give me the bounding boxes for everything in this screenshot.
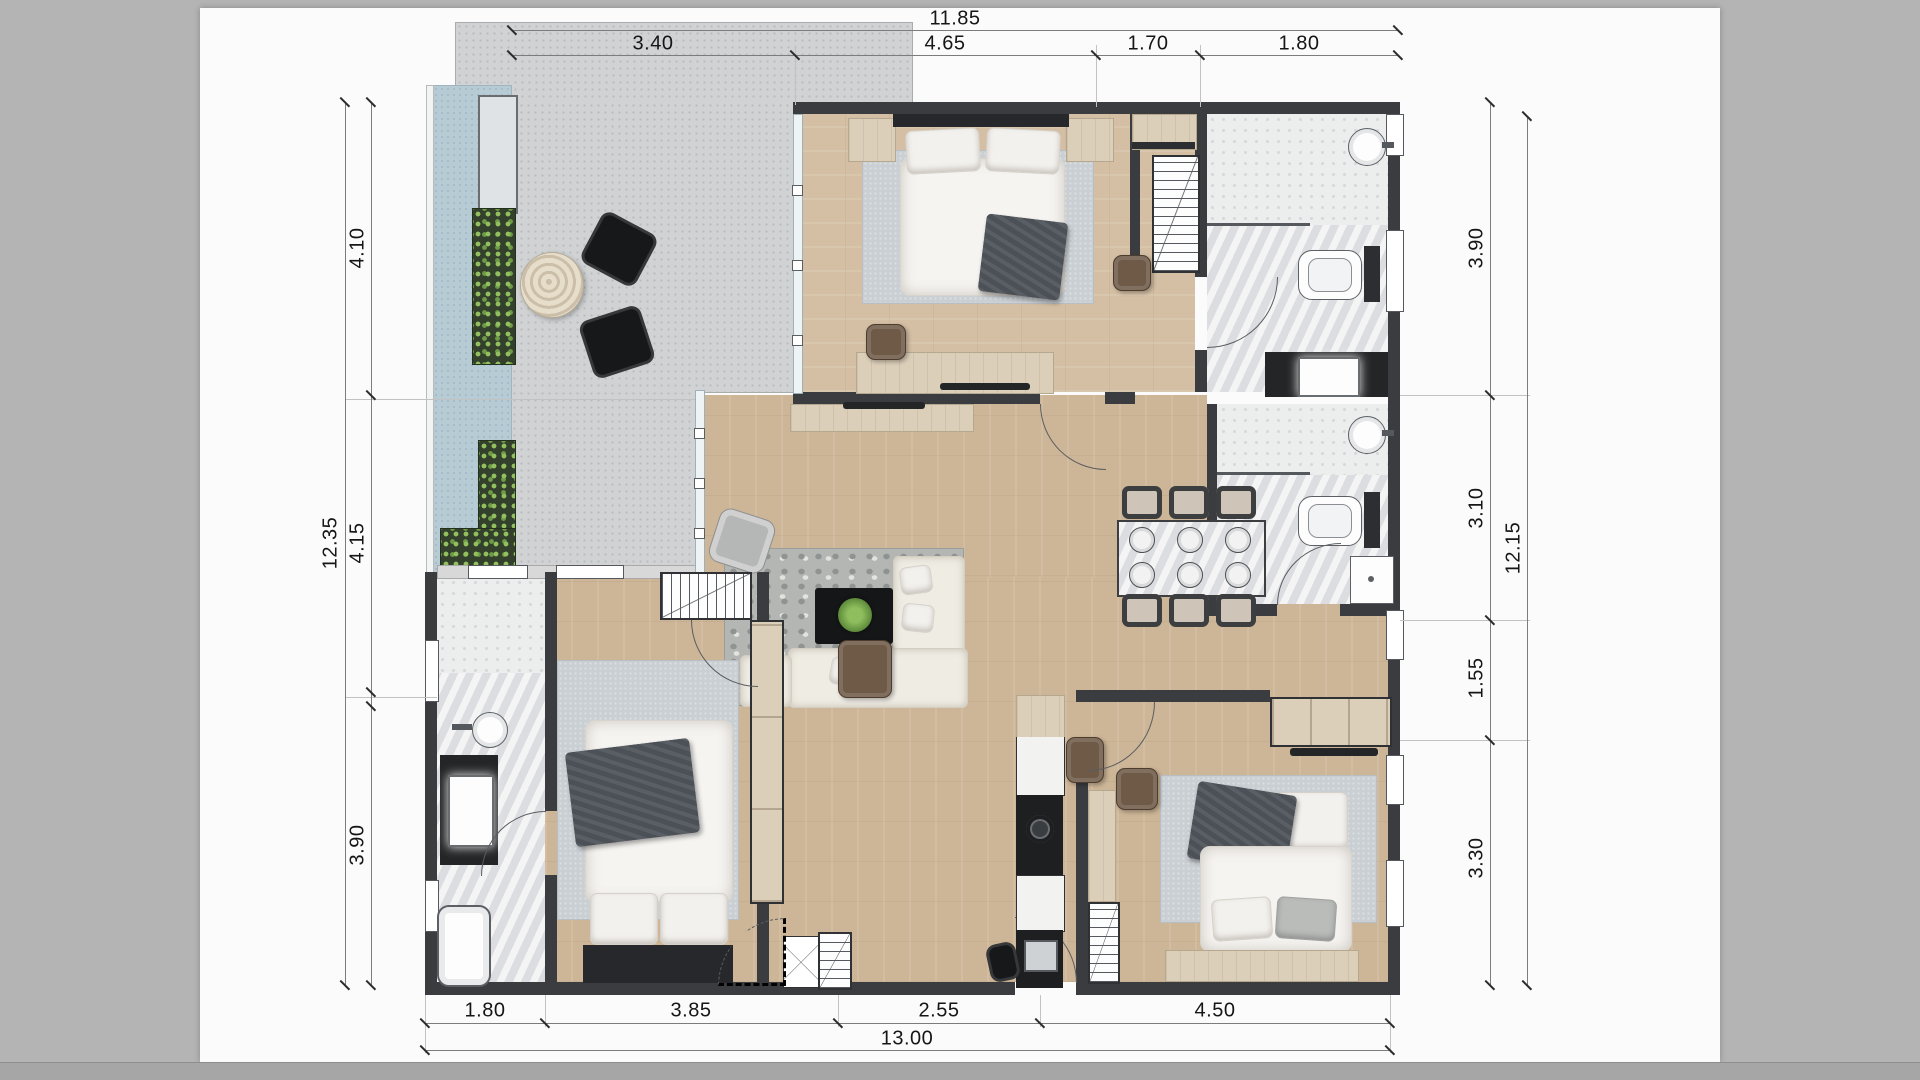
- nightstand-left: [848, 118, 896, 162]
- dim-line-right-segments: [1490, 102, 1491, 985]
- bedroom3-chair: [1116, 768, 1158, 810]
- dim-label-left-overall: 12.35: [320, 517, 343, 570]
- partition-bathroom-top: [1207, 223, 1310, 226]
- bathroom1-faucet: [452, 724, 472, 730]
- glass-wall-master-west: [793, 114, 803, 394]
- dim-label-top-overall: 11.85: [929, 8, 980, 31]
- dining-chair: [1169, 486, 1209, 519]
- bedroom3-wardrobe: [1270, 697, 1392, 747]
- window-north-bottom-1: [468, 565, 528, 579]
- kitchen-counter-marble-1: [1016, 737, 1065, 796]
- kitchen-upper-cabinet: [1016, 695, 1065, 739]
- entry-cabinet: [818, 932, 852, 990]
- bed2-pillow-1: [590, 893, 658, 945]
- kitchen-sink: [1024, 940, 1058, 972]
- wall-bedroom3-north: [1076, 690, 1270, 702]
- corridor-chair: [838, 640, 892, 698]
- window-east-4: [1386, 755, 1404, 805]
- vanity-sink: [1298, 357, 1360, 397]
- glass-mullion: [792, 260, 803, 271]
- dim-label-bottom-seg1: 1.80: [465, 1000, 506, 1023]
- dim-label-bottom-seg3: 2.55: [919, 1000, 960, 1023]
- extension-line: [345, 399, 695, 400]
- coffee-table-plant: [838, 598, 872, 632]
- bedroom3-tv: [1290, 748, 1378, 756]
- dim-label-left-seg3: 3.90: [347, 825, 370, 866]
- walkin-shelf-edge: [1132, 142, 1195, 149]
- terrace-lower: [510, 390, 698, 573]
- glass-mullion: [792, 335, 803, 346]
- dim-label-right-seg1: 3.90: [1466, 228, 1489, 269]
- dim-label-bottom-seg4: 4.50: [1195, 1000, 1236, 1023]
- extension-line: [345, 697, 437, 698]
- dining-plate: [1177, 562, 1203, 588]
- extension-line: [1400, 395, 1530, 396]
- dim-label-bottom-overall: 13.00: [881, 1028, 934, 1051]
- dim-label-right-seg4: 3.30: [1466, 838, 1489, 879]
- dim-label-right-overall: 12.15: [1503, 522, 1526, 575]
- window-east-5: [1386, 860, 1404, 927]
- walkin-wardrobe-cabinet: [1152, 155, 1200, 273]
- master-desk-chair: [866, 324, 906, 360]
- extension-line: [1400, 620, 1530, 621]
- wall-master-south-b: [1105, 392, 1135, 404]
- kitchen-pot: [1026, 815, 1054, 843]
- dim-label-top-seg3: 1.70: [1128, 33, 1169, 56]
- dining-chair: [1122, 486, 1162, 519]
- pool-edge: [426, 85, 434, 574]
- bed3-small-pillow-2: [1275, 896, 1338, 942]
- planter-plants-upper: [472, 208, 516, 365]
- dim-label-bottom-seg2: 3.85: [671, 1000, 712, 1023]
- glass-mullion: [792, 185, 803, 196]
- floor-plan-screenshot: 11.85 3.40 4.65 1.70 1.80 12.35 4.10 4.1…: [0, 0, 1920, 1080]
- bed2-pillow-2: [660, 893, 728, 945]
- wall-bedroom3-west: [1076, 772, 1088, 985]
- bathroom-top-faucet: [1382, 142, 1394, 148]
- window-east-3: [1386, 610, 1404, 660]
- bedroom3-closet-cabinet: [1088, 902, 1120, 984]
- dim-line-bottom-segments: [425, 1023, 1390, 1024]
- dim-label-right-seg3: 1.55: [1466, 658, 1489, 699]
- bed3-small-pillow-1: [1211, 896, 1274, 942]
- dining-plate: [1225, 527, 1251, 553]
- dining-chair: [1216, 594, 1256, 627]
- dining-chair: [1216, 486, 1256, 519]
- bathroom1-basin: [472, 712, 508, 748]
- glass-mullion: [694, 428, 705, 439]
- sheet-bottom-edge: [0, 1062, 1920, 1080]
- master-bed-headboard: [893, 114, 1069, 127]
- bathroom-top-toilet: [1298, 246, 1388, 302]
- floor-bathroom-bottom-left-mosaic: [437, 577, 545, 673]
- wall-bathroom-top-west-b: [1195, 350, 1207, 392]
- master-bed-pillow-1: [905, 127, 981, 175]
- bedroom3-dresser: [1088, 790, 1116, 902]
- dining-chair: [1169, 594, 1209, 627]
- kitchen-counter-marble-2: [1016, 875, 1065, 932]
- shower-drain: [1368, 576, 1374, 582]
- dining-plate: [1225, 562, 1251, 588]
- wall-bathroom1-east-a: [545, 572, 557, 811]
- bathroom-top-basin: [1348, 128, 1386, 166]
- partition-bathroom-mid: [1217, 472, 1310, 475]
- bed2-throw-blanket: [565, 738, 701, 848]
- bathtub: [437, 905, 491, 987]
- dim-line-right-overall: [1527, 116, 1528, 985]
- nightstand-right: [1066, 118, 1114, 162]
- planter-box-empty: [478, 95, 518, 214]
- window-west-bath1: [425, 640, 439, 702]
- wall-south-right: [1076, 982, 1400, 995]
- master-tv: [940, 383, 1030, 390]
- entry-floor-mat: [783, 936, 819, 988]
- bathroom1-vanity-sink: [448, 775, 494, 847]
- extension-line: [1400, 740, 1530, 741]
- wall-bathroom1-east-b: [545, 875, 557, 995]
- window-east-2: [1386, 230, 1404, 312]
- master-bed-pillow-2: [985, 127, 1061, 175]
- dim-label-left-seg2: 4.15: [347, 523, 370, 564]
- dining-chair: [1122, 594, 1162, 627]
- living-sideboard-cabinet: [660, 572, 752, 620]
- living-tv: [843, 402, 925, 409]
- wall-corridor-bedroom2-a: [757, 572, 769, 620]
- dim-label-top-seg2: 4.65: [925, 33, 966, 56]
- wall-bathroom-mid-south-b: [1340, 604, 1388, 616]
- dim-label-left-seg1: 4.10: [347, 228, 370, 269]
- dim-line-left-segments: [371, 102, 372, 985]
- bathroom-mid-toilet: [1298, 492, 1388, 548]
- dim-label-top-seg1: 3.40: [633, 33, 674, 56]
- bathroom-mid-basin: [1348, 416, 1386, 454]
- glass-mullion: [694, 478, 705, 489]
- dim-label-top-seg4: 1.80: [1279, 33, 1320, 56]
- sofa-cushion: [898, 564, 934, 596]
- walkin-stool: [1113, 255, 1151, 291]
- bed2-platform: [583, 945, 733, 983]
- bed3-foot-bench: [1165, 950, 1359, 982]
- master-bed-throw-blanket: [978, 213, 1069, 300]
- terrace-upper-slab: [455, 22, 913, 106]
- dining-plate: [1129, 527, 1155, 553]
- glass-mullion: [694, 528, 705, 539]
- window-north-bottom-2: [556, 565, 624, 579]
- dining-plate: [1177, 527, 1203, 553]
- dim-label-right-seg2: 3.10: [1466, 488, 1489, 529]
- window-east-1: [1386, 114, 1404, 156]
- bathroom-mid-faucet: [1382, 430, 1394, 436]
- patio-table: [520, 252, 584, 318]
- sofa-cushion: [901, 602, 936, 633]
- dining-plate: [1129, 562, 1155, 588]
